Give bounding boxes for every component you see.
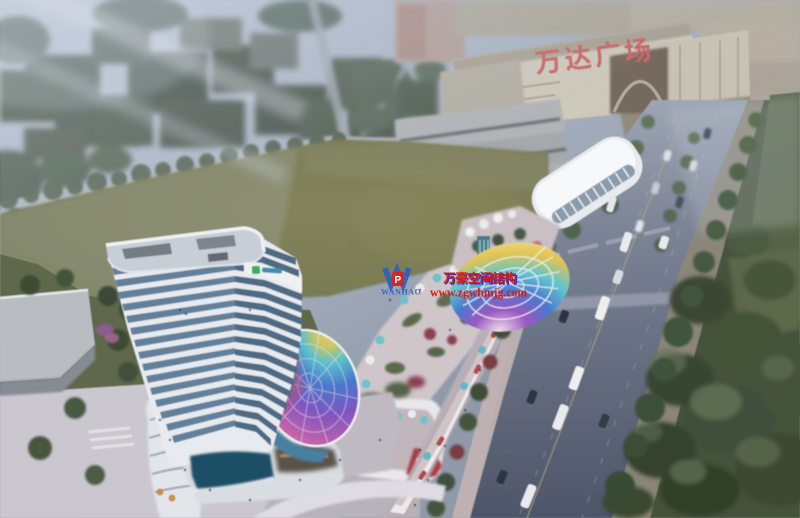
svg-text:WANHAO: WANHAO	[381, 288, 422, 297]
svg-text:P: P	[395, 275, 402, 286]
svg-text:www.zgwhmjg.com: www.zgwhmjg.com	[430, 285, 527, 299]
